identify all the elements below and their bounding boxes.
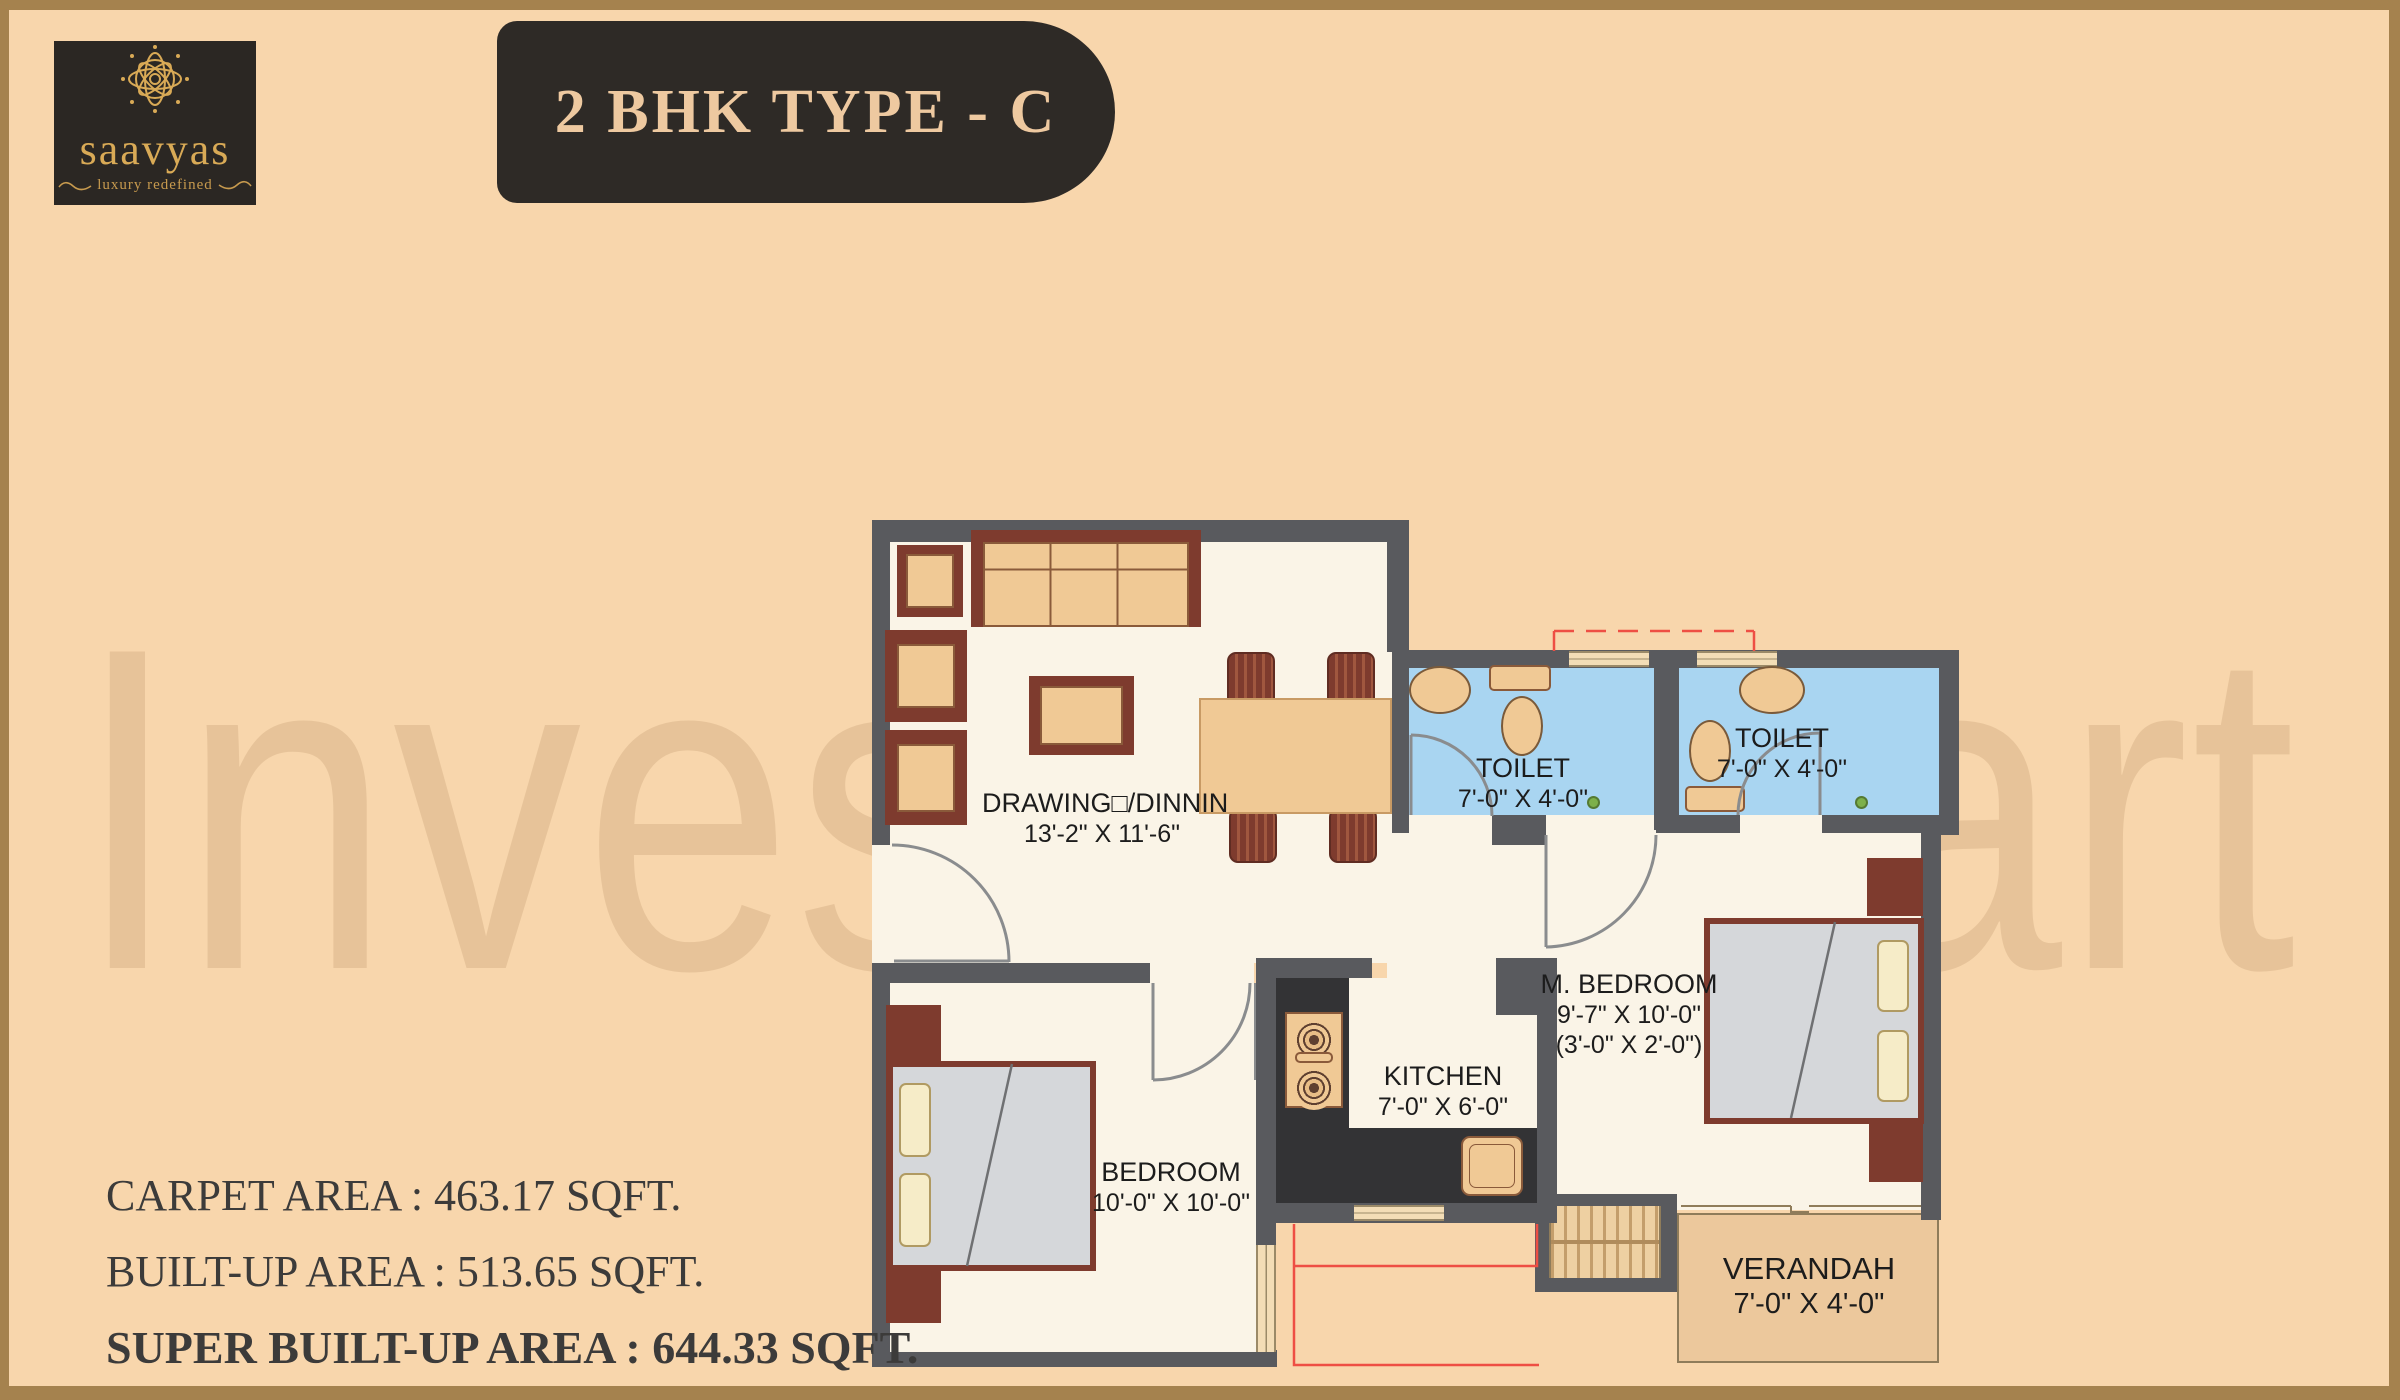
toilet2-vent-window bbox=[1697, 651, 1777, 667]
toilet1-washbasin bbox=[1409, 666, 1471, 714]
brochure-page: Investor Mart saavyas luxury redefined bbox=[0, 0, 2400, 1400]
wall-toilet-bottom-pier bbox=[1492, 815, 1546, 845]
built-up-area-line: BUILT-UP AREA : 513.65 SQFT. bbox=[106, 1234, 918, 1310]
mbedroom-nightstand-1 bbox=[1867, 858, 1923, 916]
wall-bedroom-top bbox=[872, 963, 1150, 983]
toilet1-shelf bbox=[1489, 665, 1551, 691]
mbedroom-label: M. BEDROOM 9'-7" X 10'-0" (3'-0" X 2'-0"… bbox=[1509, 968, 1749, 1060]
toilet2-washbasin bbox=[1739, 666, 1805, 714]
carpet-area-line: CARPET AREA : 463.17 SQFT. bbox=[106, 1158, 918, 1234]
wall-toilet-bottom-a bbox=[1392, 815, 1409, 833]
drawing-room-dims: 13'-2" X 11'-6" bbox=[982, 819, 1222, 849]
sofa bbox=[983, 542, 1189, 627]
wall-kitchen-top bbox=[1256, 958, 1372, 978]
dining-chair-3 bbox=[1229, 808, 1277, 863]
kitchen-label: KITCHEN 7'-0" X 6'-0" bbox=[1323, 1060, 1563, 1122]
kitchen-dims: 7'-0" X 6'-0" bbox=[1323, 1092, 1563, 1122]
utility-hatch-area bbox=[1549, 1204, 1661, 1280]
kitchen-name: KITCHEN bbox=[1323, 1060, 1563, 1092]
mbedroom-pillow-2 bbox=[1877, 1030, 1909, 1102]
mbedroom-pillow-1 bbox=[1877, 940, 1909, 1012]
area-statistics: CARPET AREA : 463.17 SQFT. BUILT-UP AREA… bbox=[106, 1158, 918, 1386]
bedroom-dims: 10'-0" X 10'-0" bbox=[1051, 1188, 1291, 1218]
tv-unit-inner bbox=[906, 554, 954, 608]
bedroom-side-window bbox=[1256, 1245, 1276, 1352]
wall-bedroom-bottom-corner bbox=[1262, 1350, 1277, 1367]
toilet1-dims: 7'-0" X 4'-0" bbox=[1403, 784, 1643, 814]
drawing-room-label: DRAWING□/DINNIN 13'-2" X 11'-6" bbox=[982, 787, 1222, 849]
wall-hatch-bottom bbox=[1535, 1278, 1677, 1292]
wall-bedroom-right-stub bbox=[1256, 1223, 1276, 1245]
mbedroom-dims: 9'-7" X 10'-0" bbox=[1509, 1000, 1749, 1030]
toilet2-label: TOILET 7'-0" X 4'-0" bbox=[1662, 722, 1902, 784]
toilet2-door-opening bbox=[1740, 815, 1822, 833]
service-line-rect bbox=[1295, 1224, 1537, 1266]
wall-hatch-top bbox=[1547, 1194, 1663, 1206]
mbedroom-name: M. BEDROOM bbox=[1509, 968, 1749, 1000]
service-line-vertical bbox=[1294, 1224, 1539, 1365]
wall-toilet-bottom-b bbox=[1656, 815, 1740, 833]
mbedroom-door-opening bbox=[1546, 815, 1656, 833]
toilet2-drain-icon bbox=[1855, 796, 1868, 809]
mbedroom-dims2: (3'-0" X 2'-0") bbox=[1509, 1030, 1749, 1060]
wall-bedroom-bottom bbox=[872, 1352, 1277, 1367]
bedroom-name: BEDROOM bbox=[1051, 1156, 1291, 1188]
wall-toilet-east bbox=[1939, 650, 1959, 835]
verandah-label: VERANDAH 7'-0" X 4'-0" bbox=[1689, 1250, 1929, 1322]
wall-mbedroom-east bbox=[1921, 833, 1941, 1220]
wall-hatch-right bbox=[1661, 1194, 1677, 1292]
toilet1-vent-window bbox=[1569, 651, 1649, 667]
kitchen-sink-basin bbox=[1469, 1144, 1515, 1188]
toilet2-dims: 7'-0" X 4'-0" bbox=[1662, 754, 1902, 784]
armchair-2 bbox=[897, 744, 955, 812]
dining-chair-4 bbox=[1329, 808, 1377, 863]
drawing-room-name: DRAWING□/DINNIN bbox=[982, 787, 1222, 819]
wall-drawing-right bbox=[1387, 520, 1409, 652]
toilet2-cistern bbox=[1685, 786, 1745, 812]
kitchen-window bbox=[1354, 1205, 1444, 1221]
toilet1-name: TOILET bbox=[1403, 752, 1643, 784]
coffee-table bbox=[1040, 686, 1123, 745]
toilet2-name: TOILET bbox=[1662, 722, 1902, 754]
toilet1-door-opening bbox=[1409, 815, 1492, 833]
verandah-dims: 7'-0" X 4'-0" bbox=[1689, 1287, 1929, 1322]
brochure-canvas: Investor Mart saavyas luxury redefined bbox=[9, 10, 2389, 1386]
toilet1-wc bbox=[1501, 696, 1543, 756]
bedroom-door-opening bbox=[1150, 963, 1254, 983]
mbedroom-nightstand-2 bbox=[1869, 1122, 1923, 1182]
super-built-up-area-line: SUPER BUILT-UP AREA : 644.33 SQFT. bbox=[106, 1310, 918, 1386]
bedroom-pillow-1 bbox=[899, 1083, 931, 1157]
toilet1-label: TOILET 7'-0" X 4'-0" bbox=[1403, 752, 1643, 814]
wall-toilet-bottom-c bbox=[1822, 815, 1959, 833]
bedroom-label: BEDROOM 10'-0" X 10'-0" bbox=[1051, 1156, 1291, 1218]
verandah-name: VERANDAH bbox=[1689, 1250, 1929, 1287]
entrance-opening bbox=[872, 845, 890, 965]
armchair-1 bbox=[897, 644, 955, 708]
